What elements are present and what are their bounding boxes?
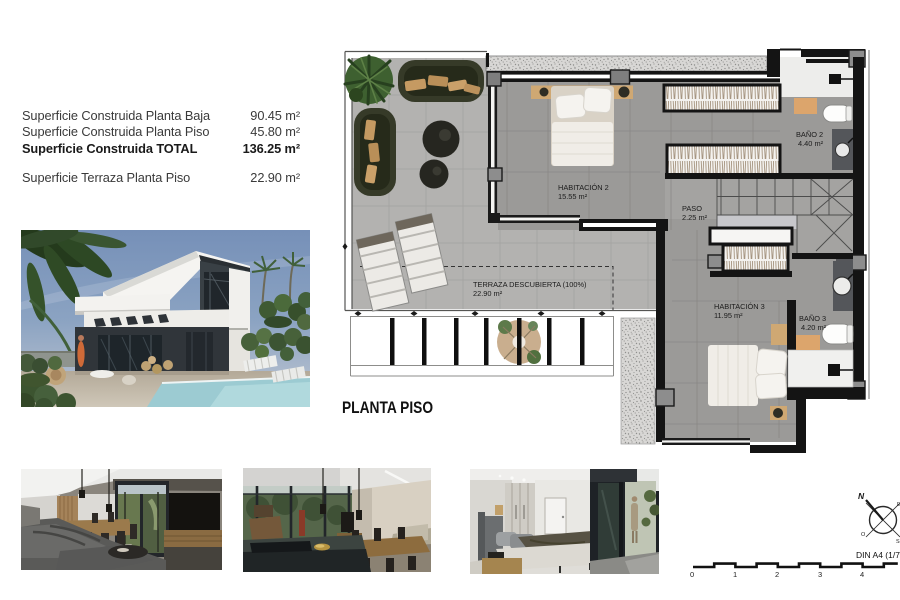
svg-text:3: 3 <box>818 570 822 579</box>
svg-text:N: N <box>858 491 865 501</box>
svg-text:TERRAZA DESCUBIERTA (100%): TERRAZA DESCUBIERTA (100%) <box>473 280 587 289</box>
svg-text:4.20 m²: 4.20 m² <box>801 323 827 332</box>
svg-text:1: 1 <box>733 570 737 579</box>
svg-text:2.25 m²: 2.25 m² <box>682 213 708 222</box>
svg-text:BAÑO 3: BAÑO 3 <box>799 314 826 323</box>
svg-text:4: 4 <box>860 570 864 579</box>
svg-text:PASO: PASO <box>682 204 702 213</box>
svg-text:4.40 m²: 4.40 m² <box>798 139 824 148</box>
svg-text:O: O <box>861 532 866 538</box>
svg-text:2: 2 <box>775 570 779 579</box>
svg-text:22.90 m²: 22.90 m² <box>473 289 503 298</box>
svg-text:BAÑO 2: BAÑO 2 <box>796 130 823 139</box>
svg-text:DIN A4 (1/75: DIN A4 (1/75 <box>856 550 900 560</box>
svg-text:S: S <box>896 539 900 545</box>
svg-text:HABITACIÓN 3: HABITACIÓN 3 <box>714 302 765 311</box>
svg-text:11.95 m²: 11.95 m² <box>714 311 743 320</box>
svg-text:0: 0 <box>690 570 694 579</box>
svg-text:15.55 m²: 15.55 m² <box>558 192 588 201</box>
svg-text:HABITACIÓN 2: HABITACIÓN 2 <box>558 183 609 192</box>
